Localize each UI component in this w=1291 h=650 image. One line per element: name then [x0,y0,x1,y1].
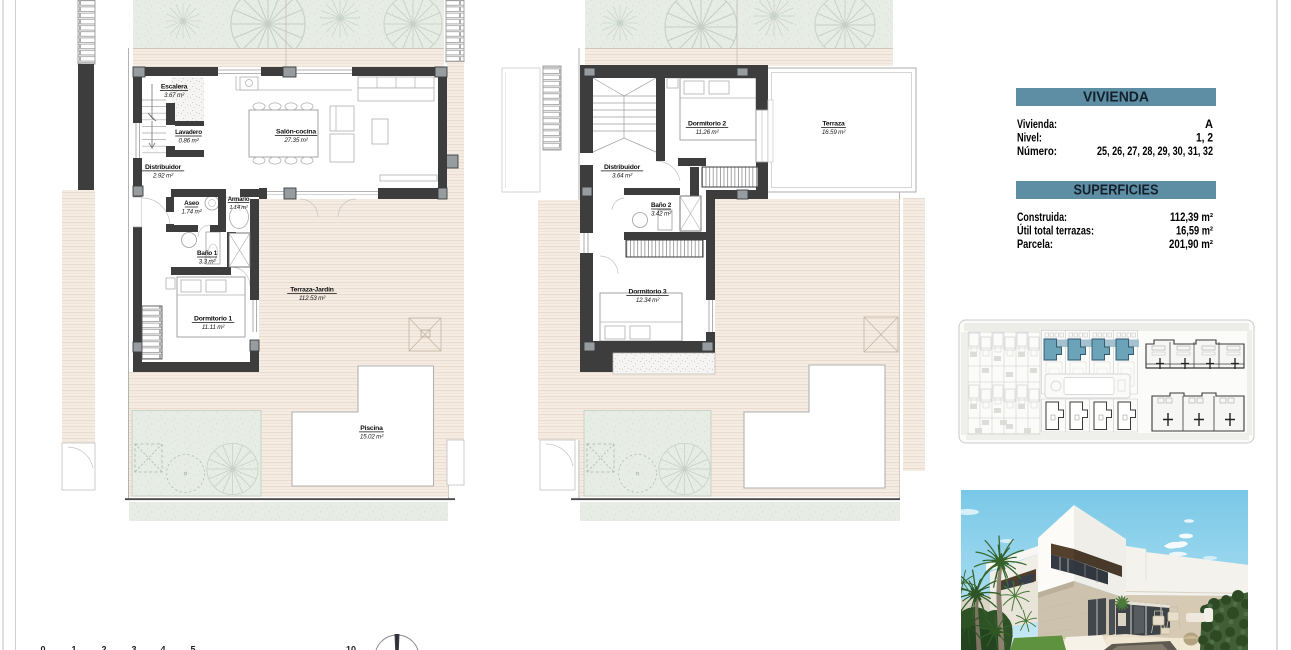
svg-text:3.3 m²: 3.3 m² [199,259,217,266]
svg-text:15.02 m²: 15.02 m² [360,434,384,441]
svg-text:11.26 m²: 11.26 m² [696,129,720,136]
svg-text:16,59 m²: 16,59 m² [1176,226,1213,238]
svg-text:2: 2 [101,645,106,650]
svg-text:Escalera: Escalera [161,83,188,90]
svg-text:Dormitorio 2: Dormitorio 2 [688,120,726,127]
svg-text:A: A [1205,119,1213,131]
svg-text:Dormitorio 1: Dormitorio 1 [194,315,232,322]
svg-text:Parcela:: Parcela: [1017,239,1053,251]
svg-text:0.86 m²: 0.86 m² [179,138,200,145]
svg-text:Distribuidor: Distribuidor [604,164,641,171]
svg-text:3.64 m²: 3.64 m² [612,173,633,180]
svg-text:Vivienda:: Vivienda: [1017,119,1057,131]
svg-text:Terraza-Jardín: Terraza-Jardín [290,286,334,293]
svg-text:Baño 1: Baño 1 [197,250,218,257]
svg-text:Distribuidor: Distribuidor [145,164,182,171]
svg-text:1: 1 [71,645,76,650]
svg-text:Lavadero: Lavadero [175,129,202,136]
svg-text:12.34 m²: 12.34 m² [636,297,660,304]
svg-text:3.67 m²: 3.67 m² [164,92,185,99]
svg-text:27.35 m²: 27.35 m² [283,137,308,144]
svg-text:1.14 m²: 1.14 m² [229,205,249,211]
svg-text:11.11 m²: 11.11 m² [202,324,225,331]
svg-text:16.59 m²: 16.59 m² [822,129,846,136]
svg-text:Construida:: Construida: [1017,212,1067,224]
svg-text:5: 5 [190,645,195,650]
svg-text:112,39 m²: 112,39 m² [1170,212,1213,224]
svg-text:SUPERFICIES: SUPERFICIES [1074,183,1159,199]
svg-text:VIVIENDA: VIVIENDA [1083,90,1149,106]
svg-text:0: 0 [40,645,45,650]
svg-text:Piscina: Piscina [360,425,383,432]
svg-text:112.53 m²: 112.53 m² [299,295,326,302]
svg-text:Terraza: Terraza [822,120,845,127]
svg-text:25, 26, 27, 28, 29, 30, 31, 3: 25, 26, 27, 28, 29, 30, 31, 32 [1097,146,1213,158]
svg-text:2.92 m²: 2.92 m² [152,173,174,180]
svg-text:Número:: Número: [1017,146,1057,158]
svg-text:Útil total terrazas:: Útil total terrazas: [1017,225,1094,238]
svg-text:Aseo: Aseo [184,200,199,207]
svg-text:201,90 m²: 201,90 m² [1169,239,1213,251]
svg-text:3.42 m²: 3.42 m² [651,211,672,218]
svg-text:Salón-cocina: Salón-cocina [276,128,316,135]
svg-text:Baño 2: Baño 2 [651,202,672,209]
svg-text:1, 2: 1, 2 [1196,133,1213,145]
svg-text:3: 3 [131,645,136,650]
svg-text:Nivel:: Nivel: [1017,133,1042,145]
svg-text:4: 4 [160,645,165,650]
svg-text:1.74 m²: 1.74 m² [182,209,203,216]
svg-text:Dormitorio 3: Dormitorio 3 [628,288,666,295]
svg-text:10: 10 [346,645,356,650]
svg-text:Armario: Armario [228,197,250,203]
